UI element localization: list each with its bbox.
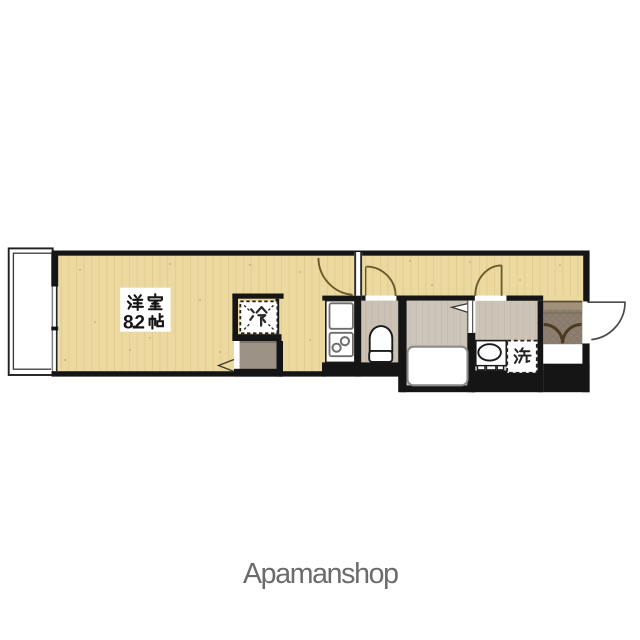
svg-text:Apamanshop: Apamanshop bbox=[243, 558, 399, 590]
svg-text:8.2: 8.2 bbox=[123, 313, 145, 334]
